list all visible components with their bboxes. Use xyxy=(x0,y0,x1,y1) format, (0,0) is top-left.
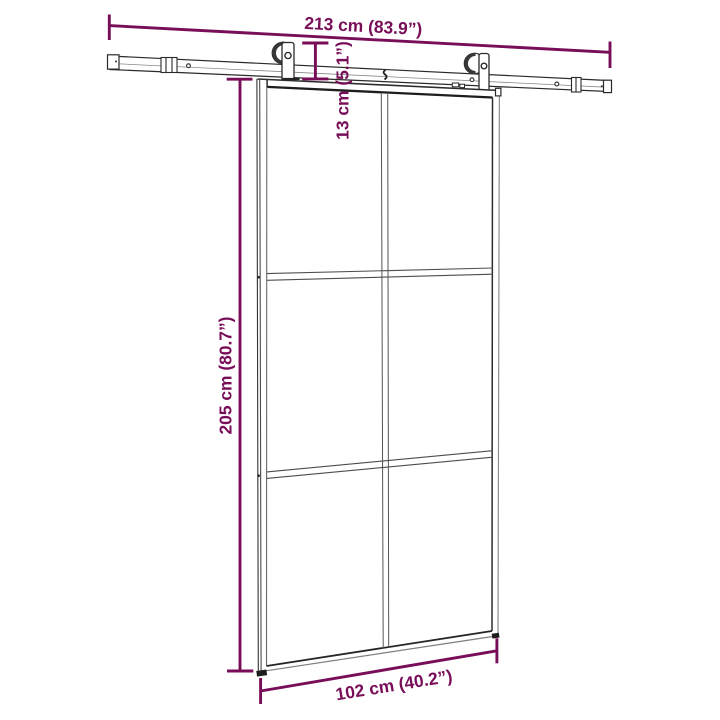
svg-text:205 cm (80.7”): 205 cm (80.7”) xyxy=(216,317,236,435)
svg-text:13 cm (5.1”): 13 cm (5.1”) xyxy=(333,41,353,140)
